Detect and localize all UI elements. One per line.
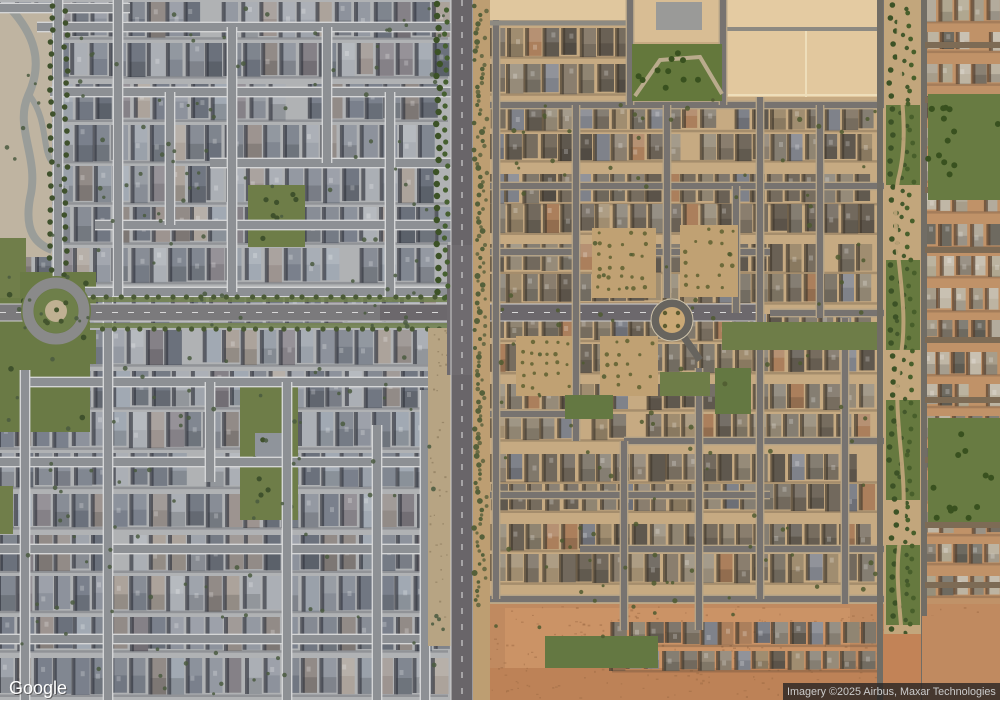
svg-text:Google: Google bbox=[9, 678, 67, 698]
svg-text:Imagery ©2025 Airbus, Maxar Te: Imagery ©2025 Airbus, Maxar Technologies bbox=[787, 686, 996, 698]
